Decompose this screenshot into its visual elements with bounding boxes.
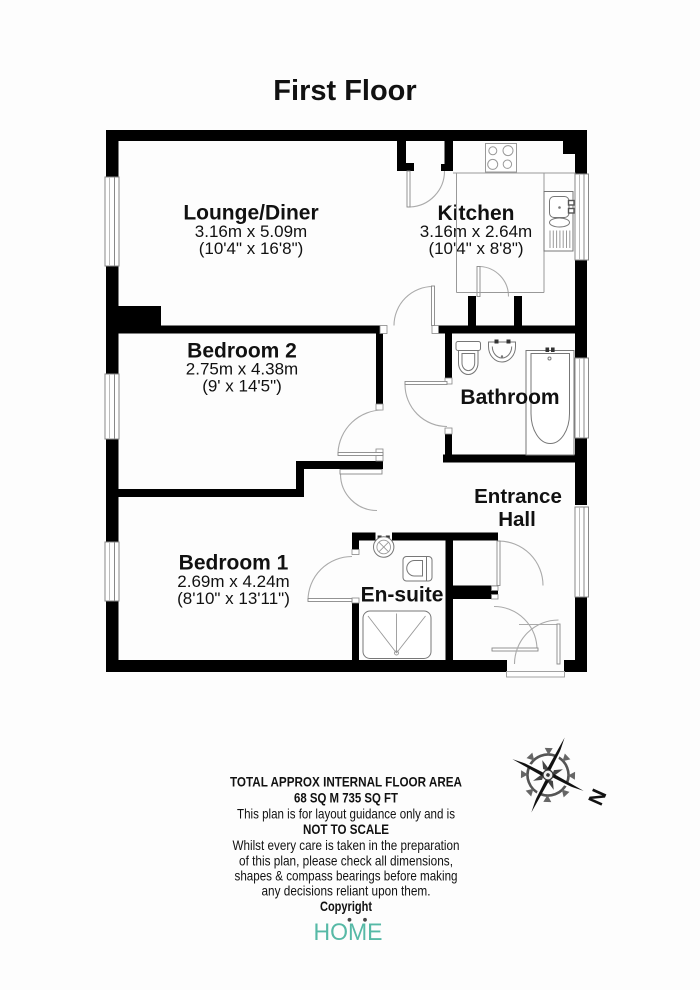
svg-text:Copyright: Copyright [320, 898, 372, 914]
svg-text:Bathroom: Bathroom [460, 386, 559, 409]
svg-text:NOT TO SCALE: NOT TO SCALE [303, 821, 389, 837]
svg-text:Entrance: Entrance [474, 485, 562, 508]
svg-text:En-suite: En-suite [361, 584, 444, 607]
svg-text:(8'10" x 13'11"): (8'10" x 13'11") [177, 589, 290, 608]
svg-text:68 SQ M 735 SQ FT: 68 SQ M 735 SQ FT [294, 790, 398, 806]
svg-text:TOTAL APPROX INTERNAL FLOOR AR: TOTAL APPROX INTERNAL FLOOR AREA [230, 774, 462, 790]
svg-text:HOME: HOME [314, 919, 383, 946]
svg-text:First Floor: First Floor [273, 75, 416, 107]
svg-text:Hall: Hall [498, 508, 536, 531]
svg-text:(10'4" x 16'8"): (10'4" x 16'8") [199, 239, 304, 258]
svg-text:any decisions reliant upon the: any decisions reliant upon them. [262, 882, 431, 898]
svg-text:(9' x 14'5"): (9' x 14'5") [202, 377, 282, 396]
svg-text:This plan is for layout guidan: This plan is for layout guidance only an… [237, 806, 455, 822]
svg-text:Whilst every care is taken in: Whilst every care is taken in the prepar… [233, 837, 460, 853]
svg-text:(10'4" x 8'8"): (10'4" x 8'8") [428, 239, 523, 258]
svg-text:of this plan, please check all: of this plan, please check all dimension… [239, 852, 453, 868]
svg-text:shapes & compass bearings befo: shapes & compass bearings before making [235, 868, 458, 884]
